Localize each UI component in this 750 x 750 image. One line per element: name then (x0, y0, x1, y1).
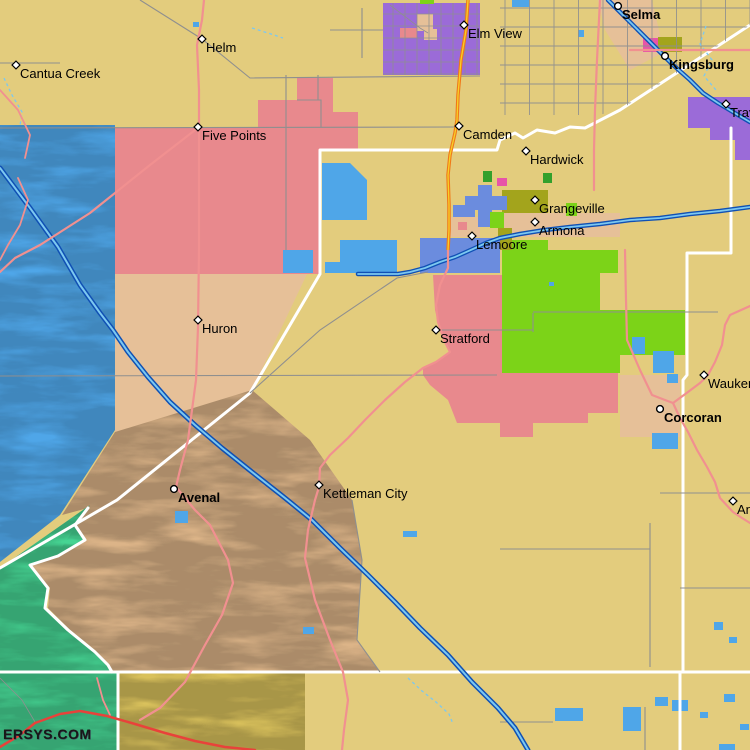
town-label: Traver (730, 105, 750, 120)
town-label: Five Points (202, 128, 267, 143)
town-label: Waukena (708, 376, 750, 391)
patch-elmview-pink (400, 28, 417, 38)
map-viewport[interactable]: Cantua CreekHelmFive PointsElm ViewCamde… (0, 0, 750, 750)
patch-lake (667, 374, 678, 383)
patch-water (555, 708, 583, 721)
city-marker-icon (657, 406, 664, 413)
patch-water (714, 622, 723, 630)
patch-grangeville-magenta (497, 178, 507, 186)
town-label: Avenal (178, 490, 220, 505)
patch-water (175, 511, 188, 523)
patch-grangeville-green (490, 212, 504, 228)
town-label: Kettleman City (323, 486, 408, 501)
patch-water (652, 433, 678, 449)
town-label: Camden (463, 127, 512, 142)
city-marker-icon (662, 53, 669, 60)
patch-water (283, 250, 313, 273)
town-label: Corcoran (664, 410, 722, 425)
patch-elmview-tan (417, 14, 433, 31)
town-label: Angiola (737, 502, 750, 517)
town-label: Lemoore (476, 237, 527, 252)
region-corcoran-peach (620, 375, 680, 437)
patch-water (740, 724, 749, 730)
patch-hardwick-darkgreen (543, 173, 552, 183)
patch-water (655, 697, 668, 706)
patch-water (303, 627, 314, 634)
town-label: Armona (539, 223, 585, 238)
town-label: Grangeville (539, 201, 605, 216)
patch-water (623, 707, 641, 731)
patch-lake (632, 337, 645, 354)
patch-water (549, 282, 554, 286)
patch-grangeville-cornflower2 (465, 196, 507, 210)
town-label: Stratford (440, 331, 490, 346)
watermark: ERSYS.COM (3, 726, 92, 742)
town-label: Cantua Creek (20, 66, 101, 81)
patch-water (724, 694, 735, 702)
city-marker-icon (615, 3, 622, 10)
patch-water (512, 0, 529, 7)
patch-water (325, 262, 397, 273)
patch-water (719, 744, 735, 750)
town-label: Huron (202, 321, 237, 336)
patch-lake (653, 351, 674, 373)
patch-water (193, 22, 199, 27)
town-label: Kingsburg (669, 57, 734, 72)
patch-elmview-green (420, 0, 434, 4)
town-label: Selma (622, 7, 661, 22)
patch-water (700, 712, 708, 718)
town-label: Hardwick (530, 152, 584, 167)
city-marker-icon (171, 486, 178, 493)
map-canvas: Cantua CreekHelmFive PointsElm ViewCamde… (0, 0, 750, 750)
patch-water (729, 637, 737, 643)
patch-lemoore-pink (458, 222, 467, 230)
patch-water (403, 531, 417, 537)
patch-grangeville-darkgreen (483, 171, 492, 182)
town-label: Elm View (468, 26, 523, 41)
town-label: Helm (206, 40, 236, 55)
